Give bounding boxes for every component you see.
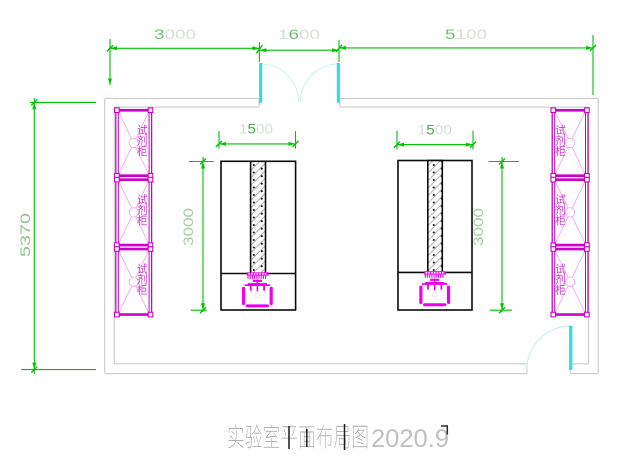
svg-text:3000: 3000 <box>154 26 196 42</box>
svg-text:3000: 3000 <box>470 208 486 246</box>
svg-text:5370: 5370 <box>17 213 33 257</box>
svg-text:1600: 1600 <box>278 26 320 42</box>
svg-text:1500: 1500 <box>239 121 273 137</box>
svg-text:1500: 1500 <box>418 122 452 138</box>
svg-text:5100: 5100 <box>445 26 487 42</box>
svg-text:2020.9: 2020.9 <box>371 425 449 453</box>
svg-text:3000: 3000 <box>180 208 196 246</box>
